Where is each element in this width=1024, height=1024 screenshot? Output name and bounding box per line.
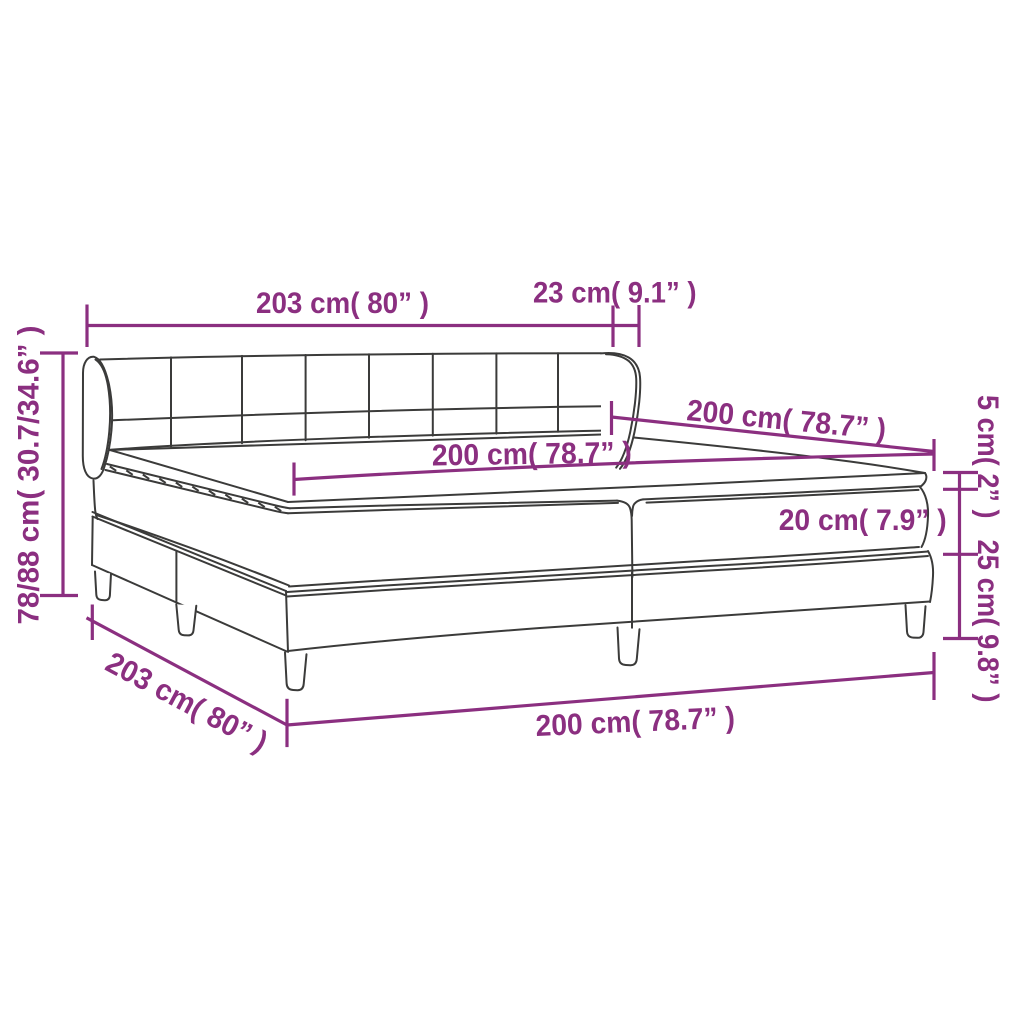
svg-text:200 cm( 78.7” ): 200 cm( 78.7” )	[432, 436, 632, 472]
svg-text:20 cm( 7.9” ): 20 cm( 7.9” )	[779, 504, 947, 537]
svg-text:23 cm( 9.1” ): 23 cm( 9.1” )	[533, 277, 697, 310]
svg-text:78/88 cm( 30.7/34.6” ): 78/88 cm( 30.7/34.6” )	[13, 326, 46, 625]
svg-text:5 cm( 2” ): 5 cm( 2” )	[971, 395, 1004, 519]
svg-text:203 cm( 80” ): 203 cm( 80” )	[256, 287, 429, 320]
svg-text:25 cm( 9.8” ): 25 cm( 9.8” )	[971, 540, 1004, 703]
